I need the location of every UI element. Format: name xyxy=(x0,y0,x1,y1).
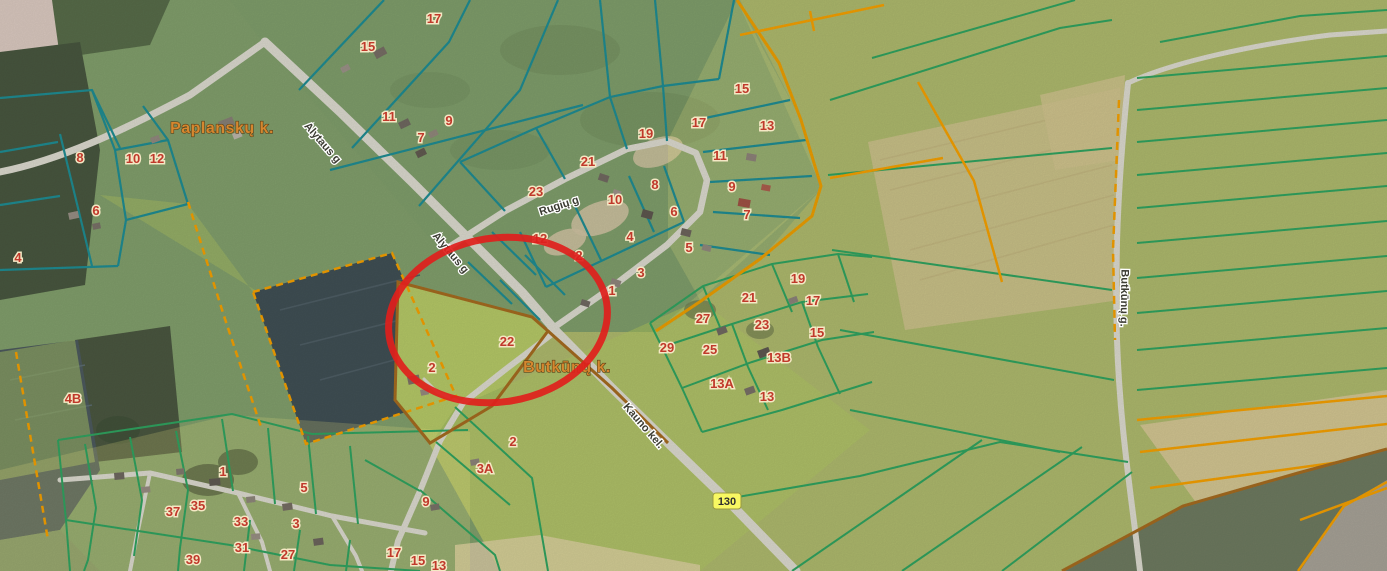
parcel-number-label: 6 xyxy=(92,203,99,218)
parcel-number-label: 17 xyxy=(387,545,401,560)
parcel-number-label: 21 xyxy=(742,290,756,305)
parcel-number-label: 9 xyxy=(422,494,429,509)
parcel-number-label: 19 xyxy=(791,271,805,286)
parcel-number-label: 3A xyxy=(477,461,494,476)
parcel-number-label: 8 xyxy=(651,177,658,192)
parcel-number-label: 15 xyxy=(361,39,375,54)
parcel-number-label: 5 xyxy=(685,240,692,255)
parcel-number-label: 23 xyxy=(755,317,769,332)
parcel-number-label: 27 xyxy=(696,311,710,326)
parcel-number-label: 6 xyxy=(670,204,677,219)
parcel-number-label: 21 xyxy=(581,154,595,169)
parcel-number-label: 4 xyxy=(14,250,22,265)
parcel-number-label: 13B xyxy=(767,350,791,365)
parcel-number-label: 9 xyxy=(728,179,735,194)
parcel-number-label: 15 xyxy=(810,325,824,340)
parcel-number-label: 3 xyxy=(637,265,644,280)
street-name-label: Butkūnų g. xyxy=(1117,269,1130,327)
parcel-number-label: 19 xyxy=(639,126,653,141)
route-badge: 130 xyxy=(713,493,741,509)
place-name-label: Paplanskų k. xyxy=(170,120,274,137)
parcel-number-label: 35 xyxy=(191,498,205,513)
parcel-number-label: 7 xyxy=(417,130,424,145)
parcel-number-label: 27 xyxy=(281,547,295,562)
parcel-number-label: 3 xyxy=(292,516,299,531)
parcel-number-label: 2 xyxy=(509,434,516,449)
parcel-number-label: 13 xyxy=(432,558,446,571)
parcel-number-label: 12 xyxy=(150,151,164,166)
parcel-number-label: 4B xyxy=(65,391,82,406)
parcel-number-label: 4 xyxy=(626,229,634,244)
parcel-number-label: 33 xyxy=(234,514,248,529)
parcel-number-label: 15 xyxy=(735,81,749,96)
parcel-number-label: 39 xyxy=(186,552,200,567)
parcel-number-label: 5 xyxy=(300,480,307,495)
parcel-number-label: 13A xyxy=(710,376,734,391)
parcel-number-label: 17 xyxy=(692,115,706,130)
parcel-number-label: 17 xyxy=(806,293,820,308)
parcel-number-label: 7 xyxy=(743,207,750,222)
parcel-number-label: 8 xyxy=(76,150,83,165)
parcel-number-label: 29 xyxy=(660,340,674,355)
parcel-number-label: 11 xyxy=(382,109,396,124)
map-canvas[interactable]: Alytaus gAlytaus gRugių gKauno kel.Butkū… xyxy=(0,0,1387,571)
parcel-number-label: 31 xyxy=(235,540,249,555)
parcel-number-label: 37 xyxy=(166,504,180,519)
place-name-label: Butkūnų k. xyxy=(523,359,611,376)
parcel-number-label: 1 xyxy=(219,464,226,479)
parcel-number-label: 22 xyxy=(500,334,514,349)
route-number-label: 130 xyxy=(718,496,736,508)
parcel-number-label: 15 xyxy=(411,553,425,568)
parcel-number-label: 1 xyxy=(608,283,615,298)
parcel-number-label: 13 xyxy=(760,118,774,133)
parcel-number-label: 11 xyxy=(713,148,727,163)
parcel-number-label: 23 xyxy=(529,184,543,199)
parcel-number-label: 25 xyxy=(703,342,717,357)
parcel-number-label: 2 xyxy=(428,360,435,375)
grain-overlay xyxy=(0,0,1387,571)
parcel-number-label: 9 xyxy=(445,113,452,128)
parcel-number-label: 10 xyxy=(126,151,140,166)
parcel-number-label: 13 xyxy=(760,389,774,404)
parcel-number-label: 10 xyxy=(608,192,622,207)
parcel-number-label: 17 xyxy=(427,11,441,26)
